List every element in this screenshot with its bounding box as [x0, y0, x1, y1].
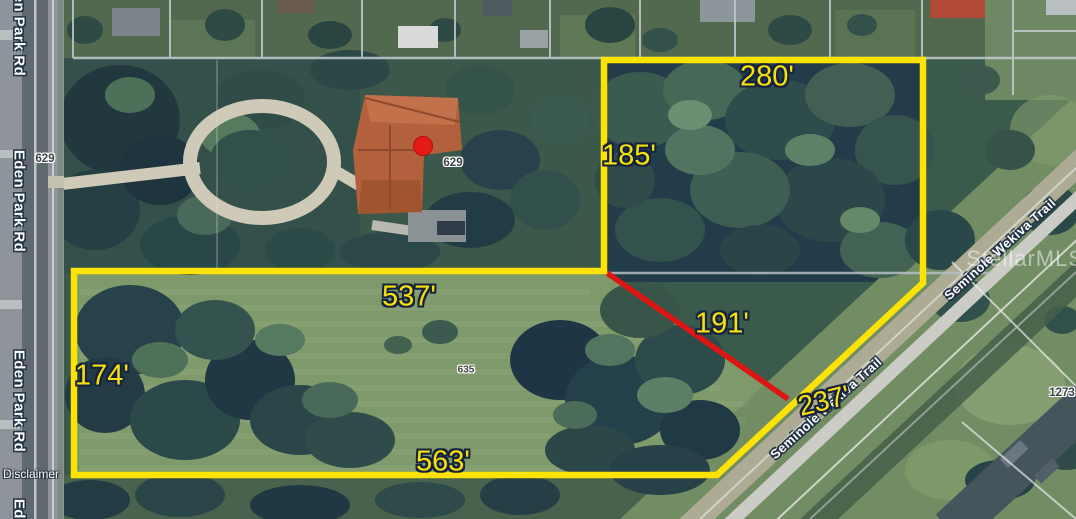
parked-car	[437, 221, 465, 235]
disclaimer-link[interactable]: Disclaimer	[3, 467, 59, 481]
road-label-eden-park-rd: Eden Park Rd	[11, 499, 28, 519]
dimension-label-185: 185'	[602, 140, 656, 173]
dimension-label-280: 280'	[740, 61, 794, 94]
address-label-629-house: 629	[443, 157, 462, 169]
address-label-635: 635	[458, 365, 475, 376]
road-label-eden-park-rd: Eden Park Rd	[11, 150, 28, 252]
address-label-629-road: 629	[35, 153, 54, 165]
dimension-label-563: 563'	[416, 446, 470, 479]
satellite-map-canvas[interactable]	[0, 0, 1076, 519]
road-label-eden-park-rd: Eden Park Rd	[11, 350, 28, 452]
red-roof-house	[930, 0, 985, 18]
subject-property-marker	[414, 137, 433, 156]
mls-watermark: StellarMLS	[966, 246, 1076, 272]
dimension-label-537: 537'	[382, 281, 436, 314]
road-label-eden-park-rd: Eden Park Rd	[11, 0, 28, 76]
aerial-map-view[interactable]: Eden Park Rd Eden Park Rd Eden Park Rd E…	[0, 0, 1076, 519]
dimension-label-191: 191'	[695, 308, 749, 341]
address-label-1273: 1273	[1049, 387, 1075, 399]
dimension-label-174: 174'	[75, 360, 129, 393]
